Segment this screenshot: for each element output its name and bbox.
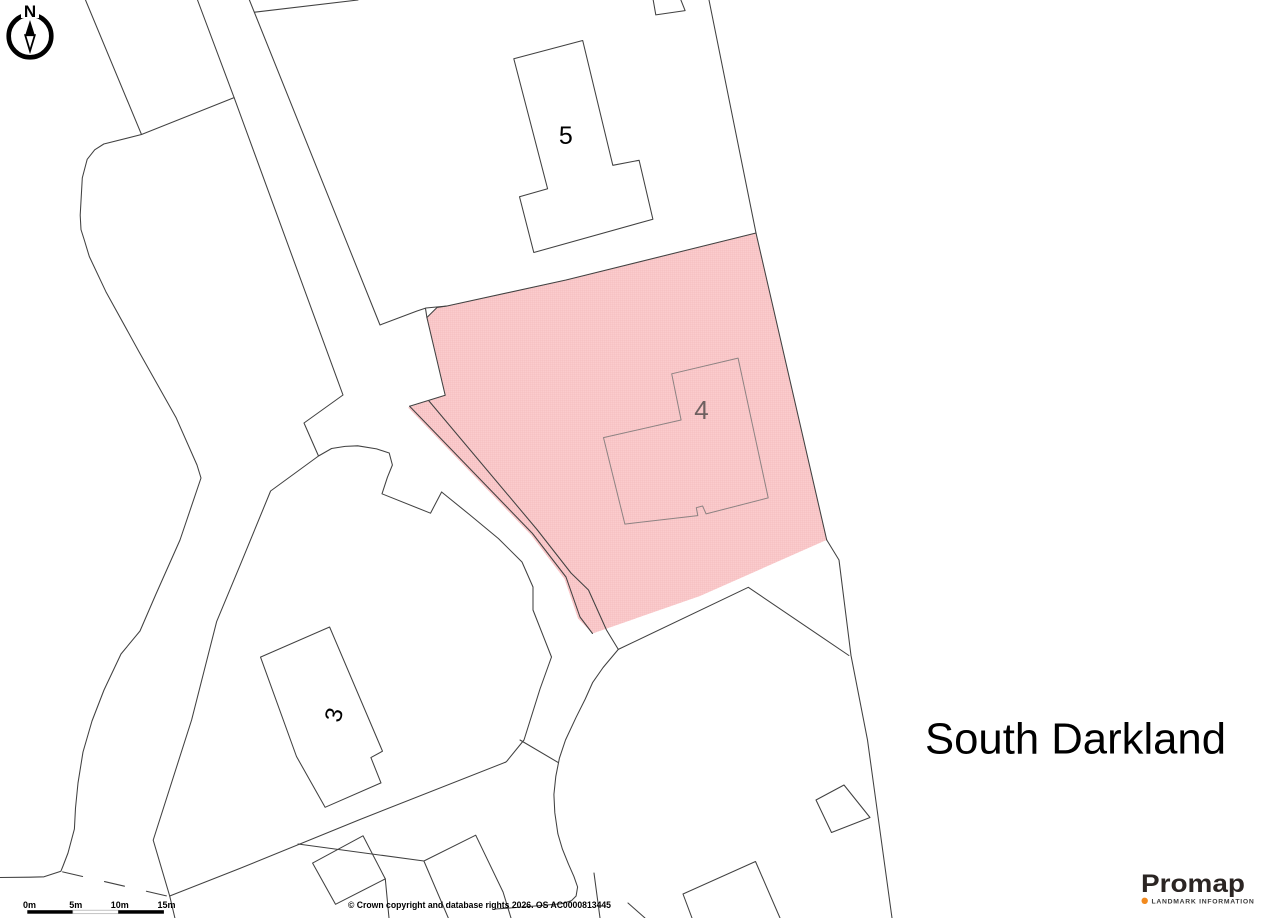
svg-text:10m: 10m xyxy=(111,900,129,910)
svg-text:Promap: Promap xyxy=(1141,870,1245,898)
svg-text:LANDMARK INFORMATION: LANDMARK INFORMATION xyxy=(1152,899,1255,906)
svg-text:5: 5 xyxy=(559,122,573,150)
svg-text:South Darkland: South Darkland xyxy=(925,715,1226,764)
svg-text:5m: 5m xyxy=(69,900,82,910)
svg-text:4: 4 xyxy=(694,395,708,425)
svg-text:N: N xyxy=(24,2,36,21)
svg-text:15m: 15m xyxy=(157,900,175,910)
svg-text:0m: 0m xyxy=(23,900,36,910)
svg-text:© Crown copyright and database: © Crown copyright and database rights 20… xyxy=(348,900,612,911)
